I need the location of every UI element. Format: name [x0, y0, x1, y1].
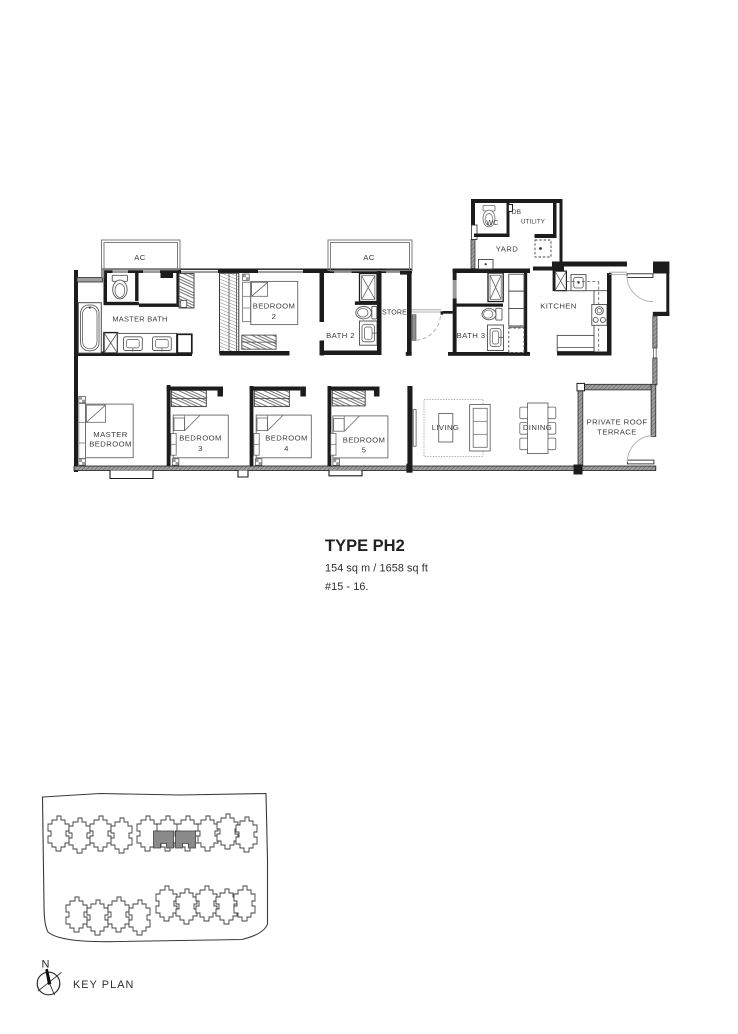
svg-text:KEY PLAN: KEY PLAN: [73, 979, 134, 991]
svg-text:BEDROOM: BEDROOM: [179, 434, 222, 443]
svg-text:STORE: STORE: [382, 310, 407, 317]
svg-text:YARD: YARD: [496, 245, 518, 254]
svg-text:AC: AC: [363, 253, 375, 262]
svg-text:BEDROOM: BEDROOM: [253, 302, 296, 311]
svg-text:PRIVATE ROOF: PRIVATE ROOF: [587, 418, 648, 427]
svg-text:3: 3: [198, 444, 203, 453]
svg-text:TYPE PH2: TYPE PH2: [325, 537, 405, 555]
svg-text:DINING: DINING: [523, 423, 552, 432]
svg-text:DB: DB: [512, 209, 522, 216]
svg-text:MASTER: MASTER: [93, 430, 127, 439]
svg-text:KITCHEN: KITCHEN: [540, 302, 577, 311]
svg-text:N: N: [42, 959, 50, 971]
svg-text:5: 5: [362, 446, 367, 455]
svg-text:BATH 2: BATH 2: [326, 331, 355, 340]
svg-text:AC: AC: [134, 253, 146, 262]
svg-text:BEDROOM: BEDROOM: [265, 434, 308, 443]
svg-text:LIVING: LIVING: [432, 423, 460, 432]
svg-text:BEDROOM: BEDROOM: [343, 436, 386, 445]
svg-text:MASTER BATH: MASTER BATH: [112, 315, 167, 324]
svg-text:TERRACE: TERRACE: [597, 428, 637, 437]
svg-text:BATH 3: BATH 3: [457, 331, 486, 340]
svg-text:WC: WC: [486, 219, 498, 227]
svg-text:4: 4: [284, 444, 289, 453]
svg-text:#15 - 16.: #15 - 16.: [325, 581, 369, 593]
svg-text:UTILITY: UTILITY: [521, 219, 545, 226]
svg-text:BEDROOM: BEDROOM: [89, 440, 132, 449]
svg-text:154 sq m / 1658 sq ft: 154 sq m / 1658 sq ft: [325, 563, 428, 575]
svg-text:2: 2: [272, 312, 277, 321]
